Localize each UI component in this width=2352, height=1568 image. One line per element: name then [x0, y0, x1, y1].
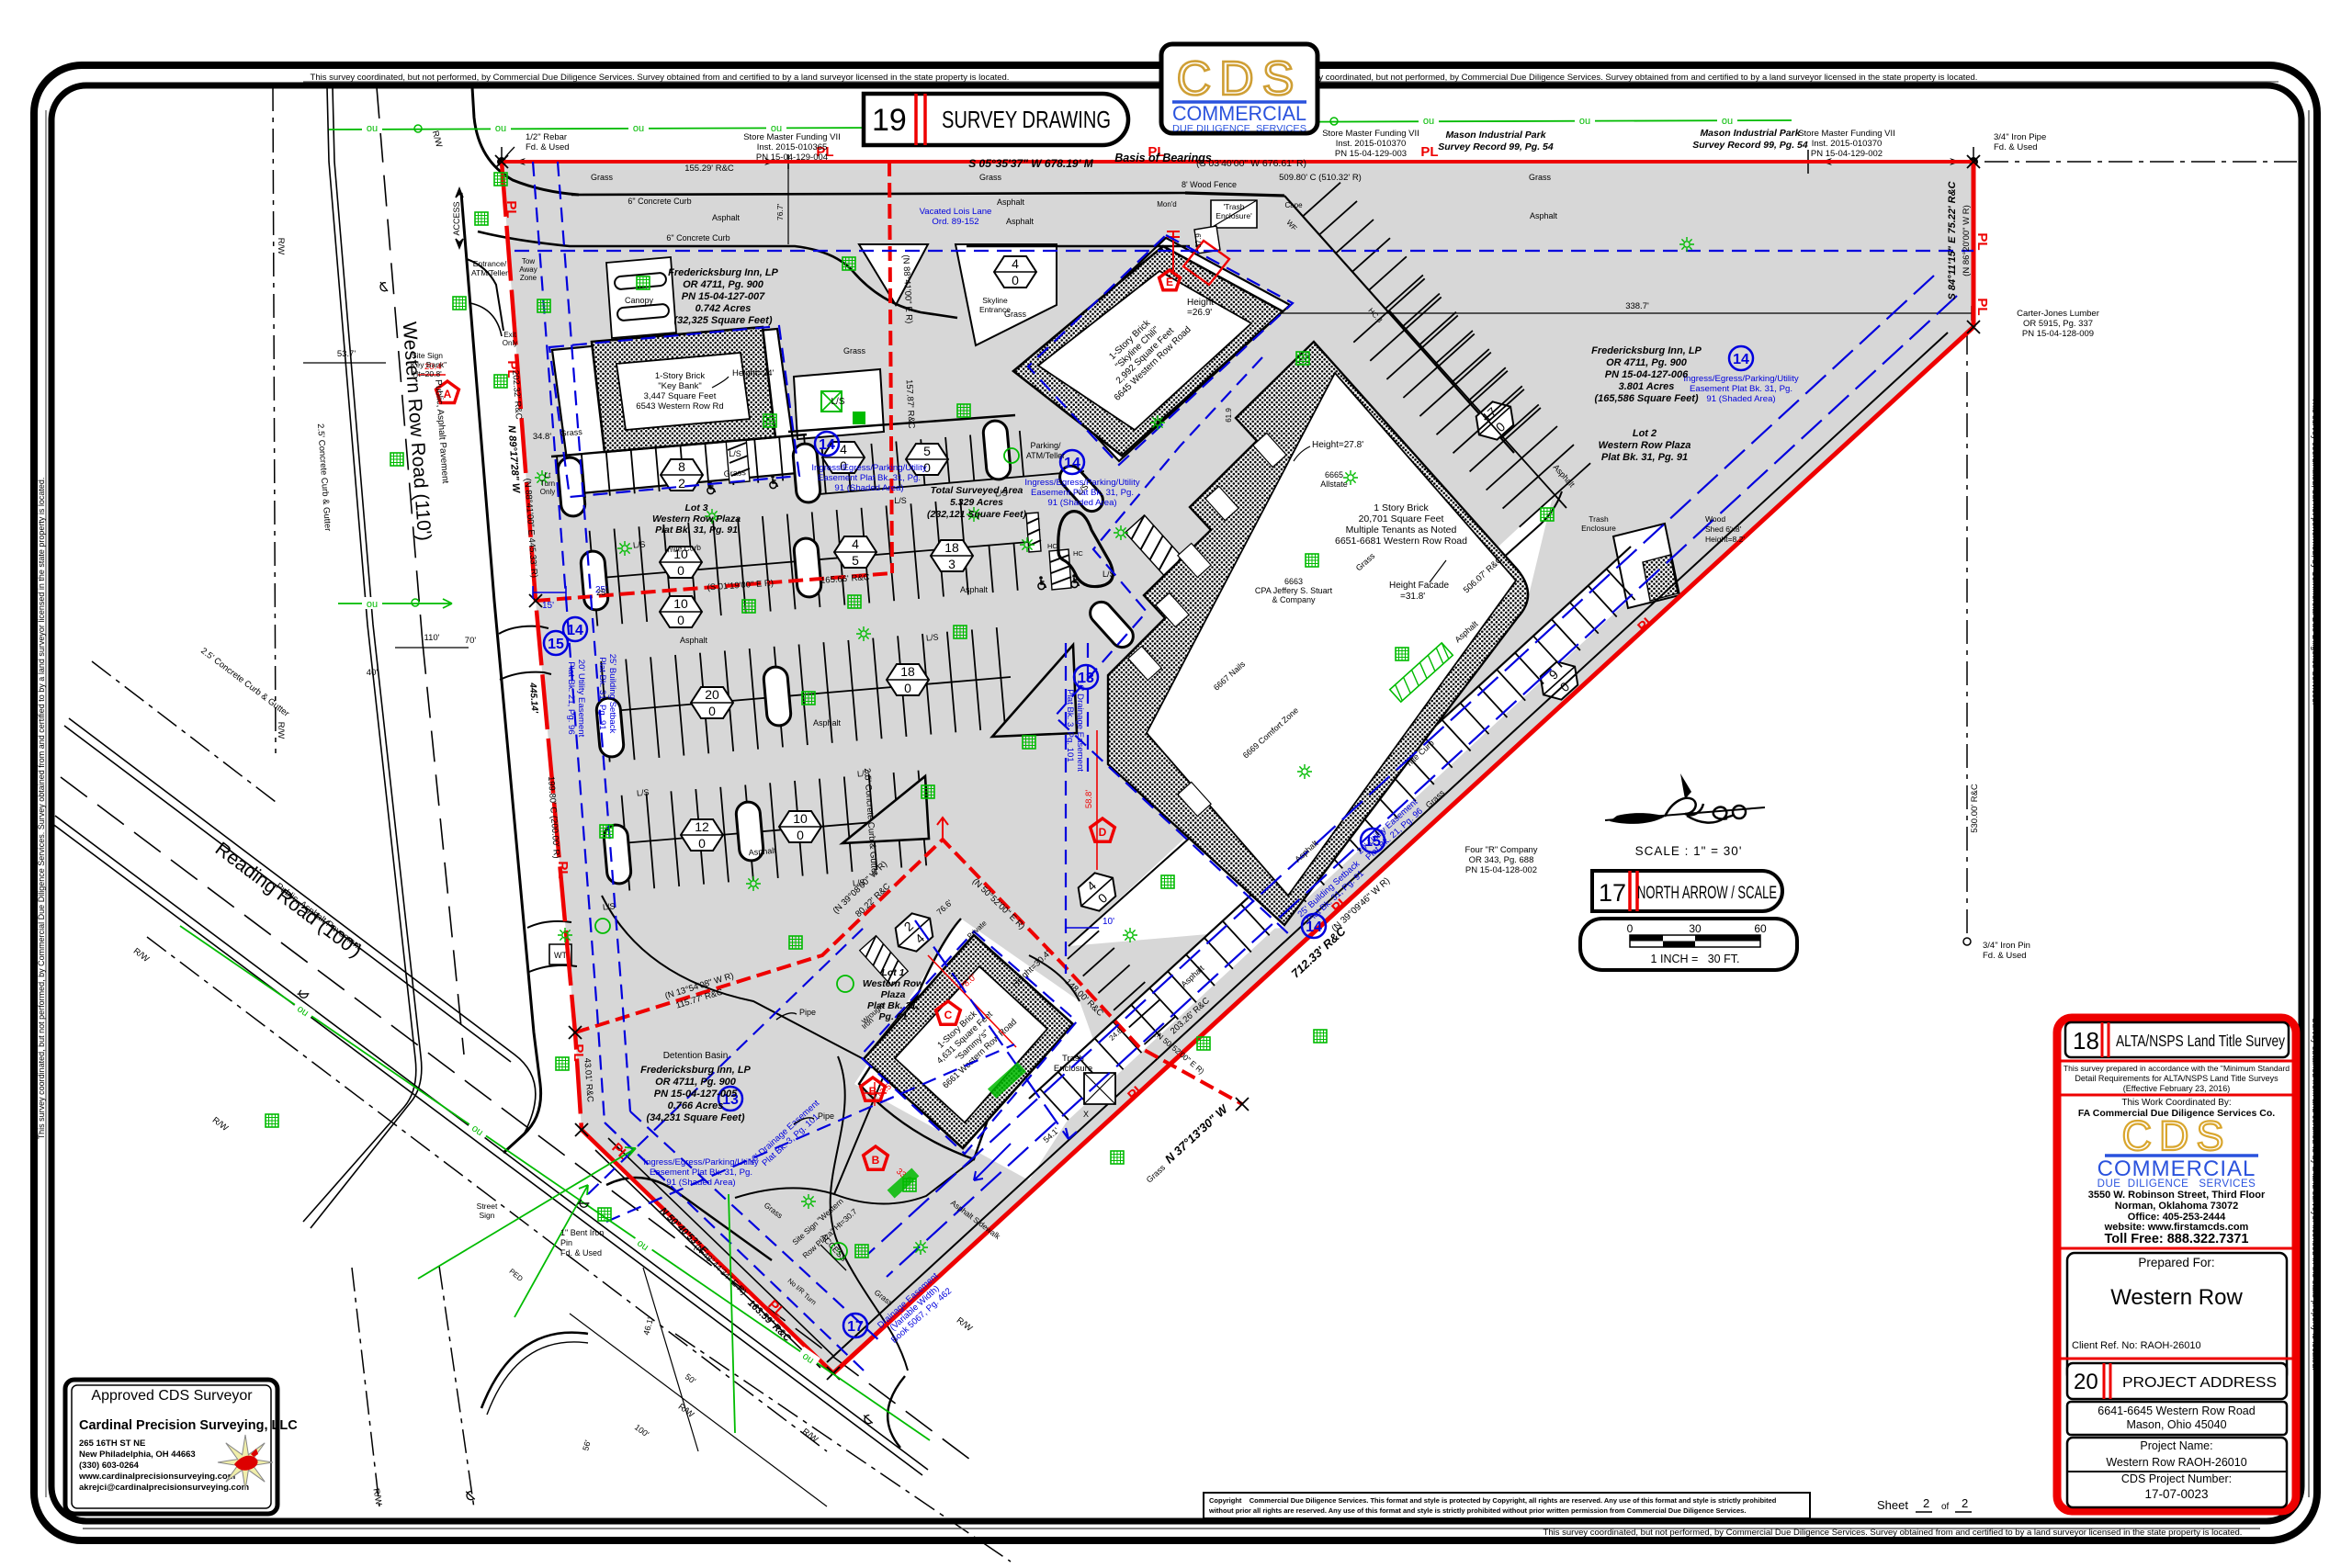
svg-text:18: 18 [2073, 1027, 2099, 1055]
svg-text:Asphalt: Asphalt [997, 197, 1025, 207]
svg-text:DUE DILIGENCE SERVICES: DUE DILIGENCE SERVICES [1172, 123, 1306, 134]
svg-text:Sign: Sign [479, 1211, 494, 1220]
svg-text:Easement Plat Bk. 31, Pg.: Easement Plat Bk. 31, Pg. [650, 1168, 752, 1178]
svg-text:6651-6681 Western Row Road: 6651-6681 Western Row Road [1335, 536, 1467, 547]
svg-text:L/S: L/S [831, 397, 844, 407]
svg-text:0.742 Acres: 0.742 Acres [695, 303, 752, 314]
svg-text:L/S: L/S [603, 901, 616, 911]
svg-text:Height=24': Height=24' [732, 368, 775, 378]
svg-text:PN 15-04-129-002: PN 15-04-129-002 [1811, 149, 1883, 159]
svg-text:Prepared For:: Prepared For: [2138, 1256, 2214, 1269]
svg-text:Multiple Tenants as Noted: Multiple Tenants as Noted [1346, 525, 1457, 536]
svg-text:Grass: Grass [1529, 173, 1552, 182]
svg-text:HC: HC [1073, 549, 1083, 558]
svg-text:WT: WT [554, 951, 567, 960]
svg-text:8: 8 [678, 459, 685, 474]
svg-text:ou: ou [367, 123, 378, 134]
svg-text:OR 4711, Pg. 900: OR 4711, Pg. 900 [1606, 357, 1688, 368]
svg-text:"Key Bank": "Key Bank" [408, 360, 447, 369]
svg-text:338.7': 338.7' [1625, 301, 1649, 311]
svg-text:Fredericksburg Inn, LP: Fredericksburg Inn, LP [640, 1065, 751, 1076]
svg-text:6" Concrete Curb: 6" Concrete Curb [666, 233, 729, 243]
svg-text:ACCESS: ACCESS [452, 201, 461, 235]
svg-text:PL: PL [1974, 298, 1990, 315]
svg-text:R/W: R/W [276, 722, 286, 739]
svg-text:530.00' R&C: 530.00' R&C [1970, 784, 1980, 833]
svg-text:Asphalt: Asphalt [712, 213, 741, 222]
svg-text:Plat Bk. 31, Pg. 91: Plat Bk. 31, Pg. 91 [655, 525, 738, 536]
svg-text:Ingress/Egress/Parking/Utility: Ingress/Egress/Parking/Utility [1683, 374, 1798, 384]
svg-text:20: 20 [705, 687, 719, 702]
svg-text:Canopy: Canopy [625, 296, 654, 305]
svg-text:155.29' R&C: 155.29' R&C [684, 164, 734, 174]
svg-text:Asphalt: Asphalt [680, 636, 708, 645]
svg-text:Carter-Jones Lumber: Carter-Jones Lumber [2017, 309, 2099, 319]
svg-text:Grass: Grass [560, 427, 582, 438]
svg-text:20: 20 [2074, 1370, 2098, 1394]
svg-text:5.329 Acres: 5.329 Acres [950, 497, 1003, 508]
svg-text:ou: ou [495, 123, 506, 134]
svg-text:(165,586 Square Feet): (165,586 Square Feet) [1594, 393, 1698, 404]
svg-text:110': 110' [424, 633, 440, 643]
svg-text:Inst. 2015-010370: Inst. 2015-010370 [1812, 139, 1883, 149]
svg-text:Grass: Grass [979, 173, 1002, 182]
svg-text:Total Surveyed Area: Total Surveyed Area [931, 485, 1023, 496]
svg-text:Enclosure': Enclosure' [1216, 211, 1252, 220]
svg-text:S 05°35'37" W 678.19' M: S 05°35'37" W 678.19' M [968, 157, 1094, 170]
svg-text:Height=8.2': Height=8.2' [1705, 535, 1745, 544]
svg-text:0: 0 [1012, 273, 1019, 288]
svg-text:1 Story Brick: 1 Story Brick [1374, 502, 1429, 513]
svg-text:CDS: CDS [1177, 52, 1303, 106]
svg-text:Lt: Lt [545, 471, 551, 479]
svg-text:37.9: 37.9 [1194, 233, 1203, 248]
svg-text:Height=27.8': Height=27.8' [1312, 440, 1363, 450]
svg-text:Western Row Plaza: Western Row Plaza [652, 513, 741, 525]
svg-text:15': 15' [542, 601, 554, 611]
svg-text:PN 15-04-127-006: PN 15-04-127-006 [1605, 369, 1689, 380]
svg-text:Client Ref. No: RAOH-26010: Client Ref. No: RAOH-26010 [2072, 1340, 2201, 1351]
svg-text:L/S: L/S [894, 496, 907, 505]
svg-text:Store Master Funding VII: Store Master Funding VII [1322, 129, 1419, 139]
svg-text:5: 5 [923, 444, 931, 458]
svg-text:ATM/Teller: ATM/Teller [471, 268, 508, 277]
svg-text:OR 4711, Pg. 900: OR 4711, Pg. 900 [655, 1077, 737, 1088]
svg-text:91 (Shaded Area): 91 (Shaded Area) [834, 483, 903, 493]
svg-text:& Company: & Company [1272, 595, 1316, 604]
svg-text:Easement Plat Bk. 31, Pg.: Easement Plat Bk. 31, Pg. [818, 473, 921, 483]
svg-text:COMMERCIAL: COMMERCIAL [1172, 102, 1306, 125]
svg-text:Store Master Funding VII: Store Master Funding VII [1798, 129, 1895, 139]
svg-text:(32,325 Square Feet): (32,325 Square Feet) [674, 315, 773, 326]
svg-text:COMMERCIAL: COMMERCIAL [2098, 1156, 2256, 1181]
svg-text:6663: 6663 [1284, 577, 1303, 586]
svg-text:Enclosure: Enclosure [1581, 524, 1616, 533]
svg-text:6543 Western Row Rd: 6543 Western Row Rd [636, 401, 723, 412]
svg-text:34.8': 34.8' [533, 432, 551, 442]
svg-text:Plat Bk. 31, Pg. 91: Plat Bk. 31, Pg. 91 [597, 657, 607, 729]
svg-text:PN 15-04-129-004: PN 15-04-129-004 [756, 152, 828, 163]
svg-text:Western Row Plaza: Western Row Plaza [1599, 440, 1691, 451]
svg-text:Western Row RAOH-26010: Western Row RAOH-26010 [2106, 1456, 2246, 1469]
svg-text:ou: ou [1423, 116, 1434, 127]
svg-text:60: 60 [1754, 922, 1767, 935]
svg-text:PN 15-04-127-005: PN 15-04-127-005 [654, 1089, 738, 1100]
svg-text:ou: ou [1579, 116, 1590, 127]
svg-text:2: 2 [678, 476, 685, 491]
svg-text:10': 10' [1102, 917, 1114, 927]
svg-text:Pipe: Pipe [799, 1008, 816, 1017]
svg-text:18: 18 [944, 540, 959, 555]
svg-text:DUE DILIGENCE SERVICES: DUE DILIGENCE SERVICES [2098, 1179, 2256, 1190]
svg-text:Mason Industrial Park: Mason Industrial Park [1445, 130, 1546, 141]
svg-text:Exit: Exit [503, 331, 516, 339]
svg-text:Entrance/: Entrance/ [473, 259, 507, 268]
svg-text:R/W: R/W [276, 238, 286, 255]
svg-text:OR 5915, Pg. 337: OR 5915, Pg. 337 [2023, 319, 2093, 329]
svg-text:L/S: L/S [729, 449, 741, 458]
svg-text:Pipe: Pipe [818, 1111, 834, 1121]
svg-text:Project Name:: Project Name: [2140, 1439, 2212, 1452]
svg-text:PN 15-04-129-003: PN 15-04-129-003 [1335, 149, 1407, 159]
svg-text:Western Row: Western Row [2110, 1285, 2243, 1310]
svg-text:"Key Bank": "Key Bank" [658, 381, 701, 391]
svg-text:Asphalt: Asphalt [960, 585, 989, 594]
svg-text:Shed 6'x8': Shed 6'x8' [1705, 525, 1742, 534]
svg-text:17: 17 [1599, 879, 1626, 907]
svg-text:B: B [872, 1154, 880, 1167]
svg-text:Fredericksburg Inn, LP: Fredericksburg Inn, LP [1591, 345, 1702, 356]
svg-text:Allstate: Allstate [1320, 479, 1348, 489]
svg-text:L/S: L/S [926, 632, 939, 642]
svg-text:Pin: Pin [560, 1238, 572, 1247]
svg-text:Approved CDS Surveyor: Approved CDS Surveyor [91, 1388, 253, 1404]
svg-text:6" Concrete Curb: 6" Concrete Curb [628, 197, 691, 206]
svg-text:CDS Project Number:: CDS Project Number: [2121, 1472, 2232, 1485]
svg-text:40': 40' [367, 668, 379, 678]
svg-text:Vacated Lois Lane: Vacated Lois Lane [920, 207, 992, 217]
svg-text:91 (Shaded Area): 91 (Shaded Area) [666, 1178, 735, 1188]
svg-text:0: 0 [904, 681, 911, 695]
svg-text:Trash: Trash [1589, 514, 1609, 524]
svg-text:0: 0 [677, 613, 684, 627]
svg-text:0: 0 [698, 836, 706, 851]
svg-text:L/S: L/S [857, 768, 870, 778]
svg-text:Copyright Commercial Due Di: Copyright Commercial Due Diligence Servi… [1209, 1496, 1777, 1505]
svg-text:19: 19 [872, 103, 907, 138]
svg-text:Asphalt: Asphalt [1006, 217, 1035, 226]
svg-text:without prior all rights are r: without prior all rights are reserved. A… [1208, 1506, 1746, 1515]
svg-text:76.7': 76.7' [775, 203, 785, 220]
svg-text:OR 343, Pg. 688: OR 343, Pg. 688 [1469, 855, 1534, 865]
svg-text:Survey Record 99, Pg. 54: Survey Record 99, Pg. 54 [1438, 141, 1554, 152]
svg-text:70': 70' [465, 636, 477, 646]
svg-text:Four "R" Company: Four "R" Company [1464, 845, 1537, 855]
svg-text:0: 0 [677, 563, 684, 578]
svg-text:Only: Only [540, 488, 555, 496]
svg-text:Height Facade: Height Facade [1389, 581, 1449, 591]
svg-text:This survey coordinated, but n: This survey coordinated, but not perform… [311, 73, 1010, 83]
svg-text:Plat Bk. 21, Pg. 96: Plat Bk. 21, Pg. 96 [566, 661, 576, 734]
svg-text:Away: Away [519, 265, 537, 274]
svg-text:D: D [1099, 826, 1107, 839]
svg-text:8' Wood Fence: 8' Wood Fence [1182, 180, 1237, 189]
svg-text:Plat Bk. 31, Pg. 91: Plat Bk. 31, Pg. 91 [1601, 452, 1688, 463]
svg-text:Toll Free: 888.322.7371: Toll Free: 888.322.7371 [2105, 1232, 2249, 1247]
svg-text:14: 14 [1064, 456, 1080, 471]
svg-text:Site Sign: Site Sign [412, 351, 443, 360]
svg-text:30: 30 [1689, 922, 1702, 935]
svg-text:www.cardinalprecisionsurveying: www.cardinalprecisionsurveying.com [78, 1472, 235, 1482]
svg-text:CPA Jeffery S. Stuart: CPA Jeffery S. Stuart [1255, 586, 1333, 595]
svg-text:E: E [1166, 276, 1173, 288]
svg-text:Mason Industrial Park: Mason Industrial Park [1700, 128, 1801, 139]
svg-text:Plat Bk. 3, Pg. 101: Plat Bk. 3, Pg. 101 [1065, 689, 1075, 761]
svg-text:3.801 Acres: 3.801 Acres [1619, 381, 1675, 392]
svg-text:ou: ou [633, 123, 644, 134]
svg-text:Inst. 2015-010365: Inst. 2015-010365 [757, 142, 828, 152]
svg-text:4: 4 [1012, 256, 1019, 271]
svg-text:(S 03'40'00" W 676.61' R): (S 03'40'00" W 676.61' R) [1196, 158, 1306, 169]
svg-text:Fd. & Used: Fd. & Used [560, 1248, 602, 1258]
svg-text:91 (Shaded Area): 91 (Shaded Area) [1706, 394, 1775, 404]
svg-text:Detail Requirements for ALTA/N: Detail Requirements for ALTA/NSPS Land T… [2075, 1074, 2278, 1083]
svg-text:PN 15-04-127-007: PN 15-04-127-007 [682, 291, 765, 302]
svg-text:Turn: Turn [540, 479, 555, 488]
svg-text:L/S: L/S [637, 787, 650, 797]
svg-text:6665: 6665 [1325, 470, 1343, 479]
svg-text:10: 10 [673, 596, 688, 611]
svg-text:S 84°11'15" E 75.22' R&C: S 84°11'15" E 75.22' R&C [1947, 180, 1958, 299]
svg-text:Detention Basin: Detention Basin [663, 1051, 729, 1061]
svg-text:New Philadelphia, OH 44663: New Philadelphia, OH 44663 [79, 1450, 196, 1460]
svg-text:ALTA/NSPS Land Title Survey: ALTA/NSPS Land Title Survey [2116, 1032, 2285, 1050]
svg-text:25': 25' [596, 588, 607, 597]
svg-text:Sheet: Sheet [1877, 1498, 1908, 1512]
svg-text:of: of [1941, 1502, 1950, 1512]
svg-text:ou: ou [367, 599, 378, 610]
svg-text:ATM/Teller: ATM/Teller [1026, 451, 1065, 460]
svg-text:Height: Height [1187, 298, 1214, 308]
svg-text:Grass: Grass [843, 346, 866, 355]
svg-text:0: 0 [708, 704, 716, 718]
svg-text:10' Drainage Easement: 10' Drainage Easement [1075, 680, 1085, 772]
svg-text:L/S: L/S [995, 488, 1008, 498]
svg-text:Street: Street [477, 1201, 498, 1211]
svg-text:2: 2 [1923, 1496, 1929, 1510]
svg-text:5: 5 [852, 553, 859, 568]
svg-text:Survey Record 99, Pg. 54: Survey Record 99, Pg. 54 [1692, 140, 1808, 151]
svg-text:(34,231 Square Feet): (34,231 Square Feet) [647, 1112, 745, 1123]
svg-text:Norman, Oklahoma 73072: Norman, Oklahoma 73072 [2115, 1201, 2239, 1212]
svg-text:Ord. 89-152: Ord. 89-152 [932, 217, 978, 227]
svg-text:15: 15 [548, 637, 564, 652]
svg-text:Tow: Tow [522, 257, 535, 265]
svg-text:58.8': 58.8' [1084, 790, 1094, 808]
svg-text:Survey obtained from and certi: Survey obtained from and certified to by… [2311, 1018, 2320, 1371]
svg-text:(232,121 Square Feet): (232,121 Square Feet) [927, 509, 1026, 520]
svg-text:20,701 Square Feet: 20,701 Square Feet [1359, 513, 1444, 525]
svg-text:17: 17 [847, 1319, 864, 1335]
svg-text:Grass: Grass [591, 173, 614, 182]
svg-text:53.7': 53.7' [337, 349, 356, 359]
svg-text:(330) 603-0264: (330) 603-0264 [79, 1461, 140, 1471]
svg-text:C: C [944, 1009, 953, 1021]
svg-text:Fd. & Used: Fd. & Used [1994, 142, 2038, 152]
svg-text:ou: ou [1722, 116, 1733, 127]
svg-text:Western Row: Western Row [863, 978, 924, 989]
svg-text:This survey prepared in accord: This survey prepared in accordance with … [2064, 1064, 2290, 1073]
svg-text:2: 2 [1962, 1496, 1968, 1510]
svg-text:HC: HC [1047, 542, 1057, 550]
svg-text:1/2" Rebar: 1/2" Rebar [526, 132, 567, 142]
svg-text:PL: PL [503, 200, 519, 218]
svg-text:Mon'd: Mon'd [1157, 200, 1177, 209]
svg-text:PL: PL [1974, 232, 1990, 250]
svg-text:Ht=20.8': Ht=20.8' [413, 369, 442, 378]
svg-text:PN 15-04-128-009: PN 15-04-128-009 [2022, 329, 2094, 339]
svg-text:Ingress/Egress/Parking/Utility: Ingress/Egress/Parking/Utility [811, 463, 926, 473]
svg-text:Cardinal Precision Surveying,: Cardinal Precision Surveying, LLC [79, 1418, 298, 1433]
svg-text:Entrance: Entrance [979, 305, 1011, 314]
svg-text:3550 W. Robinson Street, Third: 3550 W. Robinson Street, Third Floor [2088, 1190, 2266, 1201]
svg-text:17-07-0023: 17-07-0023 [2144, 1487, 2208, 1501]
svg-text:L/S: L/S [633, 539, 646, 549]
svg-text:Only: Only [503, 339, 517, 347]
svg-text:Wood: Wood [1705, 514, 1725, 524]
svg-text:91 (Shaded Area): 91 (Shaded Area) [1047, 498, 1116, 508]
svg-text:This survey coordinated, but n: This survey coordinated, but not perform… [1543, 1528, 2243, 1538]
svg-text:Lot 3: Lot 3 [684, 502, 707, 513]
svg-text:509.80' C (510.32' R): 509.80' C (510.32' R) [1279, 173, 1362, 183]
svg-text:Lot 2: Lot 2 [1633, 428, 1657, 439]
svg-text:Lot 1: Lot 1 [881, 967, 904, 978]
svg-text:20' Utility Easement: 20' Utility Easement [576, 660, 586, 738]
svg-text:265 16TH ST NE: 265 16TH ST NE [79, 1438, 145, 1449]
svg-text:1-Story Brick: 1-Story Brick [655, 371, 706, 381]
svg-text:Easement Plat Bk. 31, Pg.: Easement Plat Bk. 31, Pg. [1690, 384, 1792, 394]
svg-text:Inst. 2015-010370: Inst. 2015-010370 [1336, 139, 1407, 149]
svg-text:(Effective February 23, 2016): (Effective February 23, 2016) [2123, 1084, 2230, 1093]
svg-text:Pg. 61: Pg. 61 [879, 1011, 908, 1022]
svg-text:Store Master Funding VII: Store Master Funding VII [743, 132, 841, 142]
svg-text:Mason, Ohio 45040: Mason, Ohio 45040 [2126, 1418, 2226, 1431]
svg-text:61.9: 61.9 [1225, 408, 1233, 423]
svg-text:This Work Coordinated By:: This Work Coordinated By: [2121, 1098, 2231, 1108]
svg-text:NORTH ARROW / SCALE: NORTH ARROW / SCALE [1637, 884, 1777, 903]
svg-text:14: 14 [1733, 352, 1749, 367]
svg-text:This survey coordinated, but n: This survey coordinated, but not perform… [2311, 398, 2320, 705]
svg-text:Ingress/Egress/Parking/Utility: Ingress/Egress/Parking/Utility [643, 1157, 758, 1168]
svg-text:0: 0 [797, 828, 804, 842]
svg-text:0.766 Acres: 0.766 Acres [668, 1100, 724, 1111]
svg-text:'Trash: 'Trash [1223, 202, 1244, 211]
svg-text:SURVEY DRAWING: SURVEY DRAWING [942, 106, 1111, 133]
svg-text:This survey coordinated, but n: This survey coordinated, but not perform… [37, 478, 46, 1140]
svg-text:14: 14 [819, 437, 835, 453]
svg-text:3/4" Iron Pin: 3/4" Iron Pin [1983, 941, 2030, 951]
svg-text:Fd. & Used: Fd. & Used [526, 142, 570, 152]
svg-text:Fd. & Used: Fd. & Used [1983, 951, 2027, 961]
svg-text:akrejci@cardinalprecisionsurve: akrejci@cardinalprecisionsurveying.com [79, 1483, 249, 1493]
svg-text:Parking/: Parking/ [1030, 441, 1061, 450]
svg-text:Zone: Zone [520, 274, 537, 282]
svg-text:PL: PL [1420, 144, 1438, 160]
svg-text:SCALE : 1" = 30': SCALE : 1" = 30' [1635, 844, 1743, 858]
svg-text:PL: PL [555, 861, 571, 878]
svg-text:1" Bent Iron: 1" Bent Iron [560, 1228, 604, 1237]
svg-text:14: 14 [567, 623, 583, 638]
svg-text:12: 12 [695, 819, 709, 834]
svg-text:4: 4 [852, 536, 859, 551]
svg-text:4: 4 [840, 442, 847, 457]
svg-text:1 INCH = 30 FT.: 1 INCH = 30 FT. [1651, 953, 1740, 965]
svg-text:Fredericksburg Inn, LP: Fredericksburg Inn, LP [668, 267, 778, 278]
svg-text:CDS: CDS [2121, 1112, 2231, 1159]
svg-text:3,447 Square Feet: 3,447 Square Feet [644, 391, 717, 401]
svg-text:This survey coordinated, but n: This survey coordinated, but not perform… [1279, 73, 1978, 83]
svg-text:=26.9': =26.9' [1187, 308, 1212, 318]
svg-text:Grass: Grass [723, 468, 746, 479]
svg-text:Asphalt: Asphalt [1530, 211, 1558, 220]
svg-text:(N 86°20'00" W R): (N 86°20'00" W R) [1962, 205, 1972, 276]
svg-text:X: X [1083, 1110, 1089, 1119]
svg-text:3/4" Iron Pipe: 3/4" Iron Pipe [1994, 132, 2046, 142]
svg-text:25' Building Setback: 25' Building Setback [607, 654, 617, 734]
svg-text:Asphalt: Asphalt [813, 718, 842, 728]
svg-text:3: 3 [948, 557, 955, 571]
svg-text:Plaza: Plaza [881, 989, 906, 1000]
svg-text:PROJECT ADDRESS: PROJECT ADDRESS [2122, 1375, 2277, 1391]
svg-text:18: 18 [900, 664, 915, 679]
svg-text:=31.8': =31.8' [1400, 592, 1425, 602]
svg-text:0: 0 [1627, 922, 1634, 935]
svg-text:Cape: Cape [1284, 201, 1303, 209]
svg-text:Skyline: Skyline [982, 296, 1008, 305]
svg-text:PN 15-04-128-002: PN 15-04-128-002 [1465, 865, 1537, 875]
svg-text:OR 4711, Pg. 900: OR 4711, Pg. 900 [683, 279, 764, 290]
svg-text:10: 10 [793, 811, 808, 826]
svg-text:6641-6645 Western Row Road: 6641-6645 Western Row Road [2098, 1404, 2255, 1417]
